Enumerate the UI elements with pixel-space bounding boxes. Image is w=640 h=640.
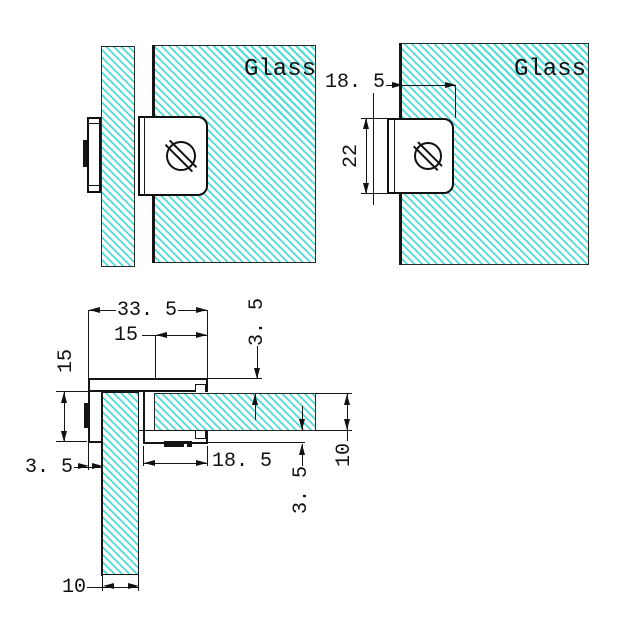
dim-text-slot-depth: 18. 5 [211,451,273,472]
clamp-inner-line [144,117,145,194]
dim-text-insert-width: 18. 5 [324,72,386,93]
back-plate-tab [84,403,88,428]
glass-strip-front [101,46,135,267]
glass-panel-plan [154,393,316,431]
clamp-bottom-plate-inner [139,430,208,432]
arrowhead [196,460,207,466]
clamp-top-plate-inner [88,390,195,392]
arrowhead [392,82,403,88]
arrowhead [344,394,350,405]
arrowhead [128,583,139,589]
back-plate-line [88,123,99,124]
gasket-notch [195,384,206,385]
clamp-back-plate-front [87,117,102,193]
dim-text-glass-inset: 15 [113,325,139,346]
projection-line [373,85,374,205]
arrowhead [61,392,67,403]
arrowhead [103,583,114,589]
dim-text-wall-left: 3. 5 [24,457,74,478]
dim-text-clamp-height: 22 [342,143,362,167]
arrowhead [196,332,207,338]
arrowhead [89,307,100,313]
back-plate-tab [83,140,88,167]
arrowhead [61,431,67,442]
arrowhead [92,463,103,469]
dim-text-side-height: 15 [57,349,77,373]
arrowhead [344,419,350,430]
dim-text-glass-thickness-right: 10 [335,443,355,467]
dim-line [374,85,456,86]
slot-bottom-line [143,392,145,432]
arrowhead [196,307,207,313]
glass-edge [101,392,103,576]
glass-label-front: Glass [243,58,317,82]
dim-text-wall-top: 3. 5 [248,298,268,346]
extension-line [208,442,305,443]
glass-clamp-technical-drawing: Glass Glass 18. 5 22 [0,0,640,640]
extension-line [155,335,156,378]
arrowhead [254,368,260,379]
back-plate-line [88,185,99,186]
arrowhead [363,183,369,194]
clamp-top-plate-edge [88,378,208,381]
arrowhead [363,118,369,129]
arrowhead [445,82,456,88]
set-screw-pad-notch [184,444,187,447]
clamp-right-edge [206,431,208,444]
set-screw-pad [164,441,192,447]
dim-text-overall-width: 33. 5 [116,300,178,321]
extension-line [207,310,208,378]
glass-edge [138,392,140,576]
arrowhead [144,460,155,466]
arrowhead [156,332,167,338]
arrowhead [299,444,305,455]
gasket-notch [195,438,206,439]
glass-strip-plan [102,392,139,575]
clamp-left-edge [143,431,145,445]
arrowhead [252,394,258,405]
glass-label-side: Glass [513,58,587,82]
clamp-right-edge [206,378,208,392]
clamp-inner-line [394,119,395,193]
glass-edge [102,574,138,575]
extension-line [455,85,456,118]
back-plate-bottom [88,441,103,443]
extension-line [88,310,89,378]
dim-text-glass-thickness-bottom: 10 [61,577,87,598]
arrowhead [299,419,305,430]
arrowhead [78,463,89,469]
dim-text-wall-bottom: 3. 5 [292,466,312,514]
